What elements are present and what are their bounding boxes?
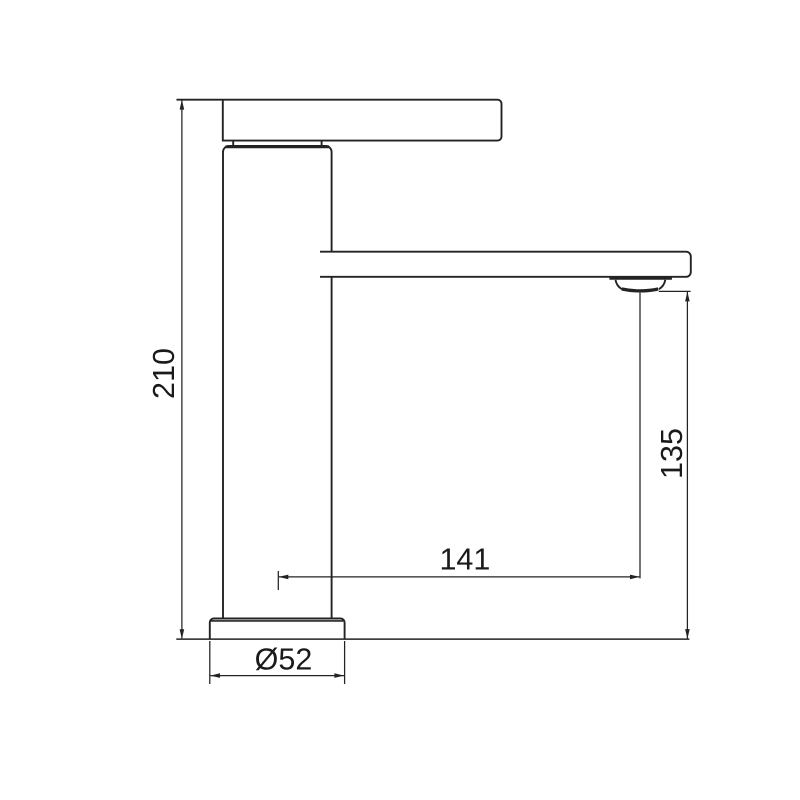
svg-text:Ø52: Ø52 (255, 643, 313, 677)
svg-text:210: 210 (147, 348, 181, 399)
svg-text:141: 141 (439, 542, 490, 576)
svg-text:135: 135 (655, 428, 689, 479)
